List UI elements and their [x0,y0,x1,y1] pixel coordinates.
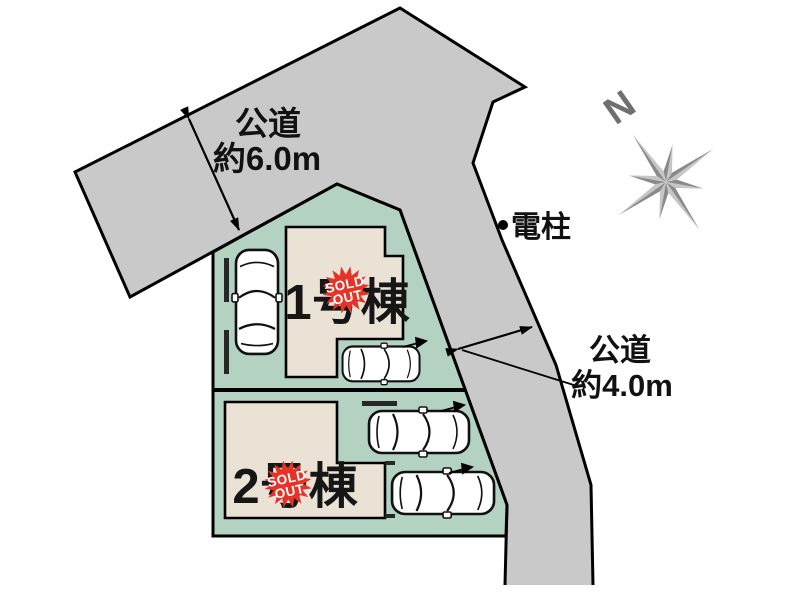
road-right-width: 約4.0m [571,368,673,403]
site-plan-svg: 電柱 N 公道 約6.0m 公道 約4.0m 1号棟 2号棟 [0,0,800,600]
car-top-view [232,250,282,354]
road-top-name: 公道 [235,105,301,142]
utility-pole-label: 電柱 [511,211,571,244]
car-top-view [369,407,469,457]
parking-divider-mark [362,401,397,406]
road-top-width: 約6.0m [213,140,321,177]
car-top-view [392,468,494,518]
utility-pole-dot [498,220,508,230]
entrance-step-mark [385,461,395,465]
parking-divider-mark [224,258,229,302]
parking-divider-mark [224,330,229,374]
compass-rose-icon [585,101,747,263]
car-top-view [343,343,420,385]
road-right-name: 公道 [589,333,651,368]
compass-north-label: N [597,83,644,133]
site-plan-diagram: 電柱 N 公道 約6.0m 公道 約4.0m 1号棟 2号棟 [0,0,800,600]
entrance-step-mark [385,514,395,518]
